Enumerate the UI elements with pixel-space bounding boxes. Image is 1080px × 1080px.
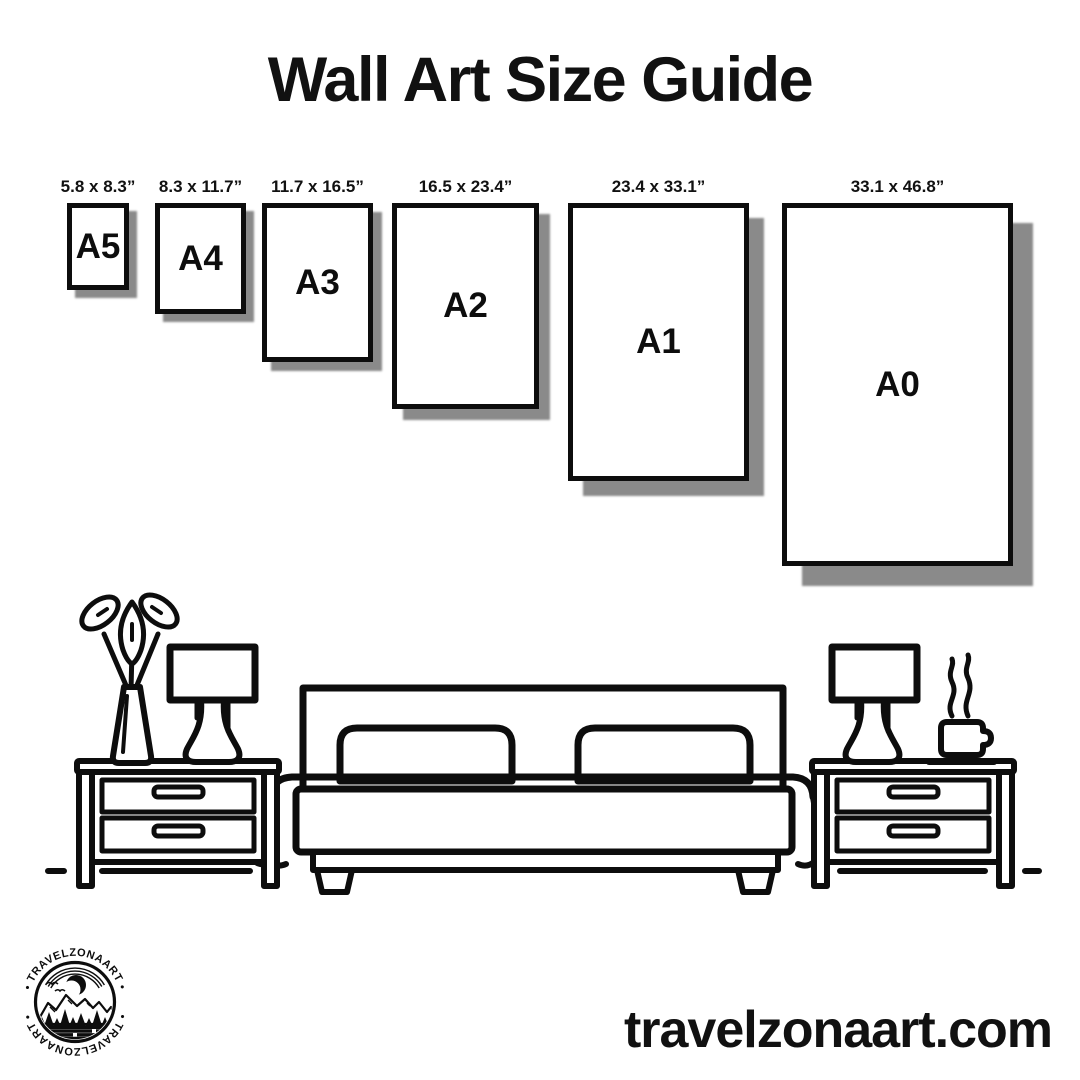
bed: [252, 688, 832, 892]
bed-base: [313, 852, 778, 870]
bed-leg-right: [738, 870, 773, 892]
size-dims-label: 23.4 x 33.1”: [612, 177, 706, 197]
right-nightstand: [812, 761, 1014, 886]
website-url: travelzonaart.com: [624, 1000, 1052, 1060]
lamp-shade: [832, 647, 917, 700]
page-title: Wall Art Size Guide: [0, 46, 1080, 115]
size-code: A0: [875, 365, 920, 405]
lamp-stem: [186, 700, 240, 762]
cup-body: [941, 722, 991, 755]
pillow-left: [340, 728, 512, 781]
size-code: A2: [443, 286, 488, 326]
table-lamp-right: [832, 647, 917, 762]
lamp-shade: [170, 647, 255, 700]
vase: [113, 687, 151, 763]
size-dims-label: 16.5 x 23.4”: [419, 177, 513, 197]
bedroom-illustration: [0, 575, 1080, 905]
size-frame-a2: A2: [392, 203, 539, 409]
size-frame-a1: A1: [568, 203, 749, 481]
size-dims-label: 11.7 x 16.5”: [271, 177, 364, 197]
bed-leg-left: [317, 870, 352, 892]
size-frame-a5: A5: [67, 203, 129, 290]
size-code: A4: [178, 239, 223, 279]
size-frame-a4: A4: [155, 203, 246, 314]
size-code: A5: [76, 227, 121, 267]
left-nightstand: [77, 761, 279, 886]
lamp-stem: [846, 700, 900, 762]
size-dims-label: 5.8 x 8.3”: [61, 177, 136, 197]
mattress: [296, 789, 792, 852]
size-code: A3: [295, 263, 340, 303]
size-frame-a0: A0: [782, 203, 1013, 566]
coffee-cup: [929, 655, 994, 762]
wall-art-size-guide: Wall Art Size Guide 5.8 x 8.3”A58.3 x 11…: [0, 0, 1080, 1080]
pillow-right: [578, 728, 750, 781]
size-dims-label: 33.1 x 46.8”: [851, 177, 945, 197]
brand-logo: • TRAVELZONAART • • TRAVELZONAART •: [0, 930, 150, 1075]
nightstand-top: [77, 761, 279, 772]
size-frame-a3: A3: [262, 203, 373, 362]
size-code: A1: [636, 322, 681, 362]
steam-icon: [950, 655, 970, 716]
size-dims-label: 8.3 x 11.7”: [159, 177, 242, 197]
table-lamp-left: [170, 647, 255, 762]
